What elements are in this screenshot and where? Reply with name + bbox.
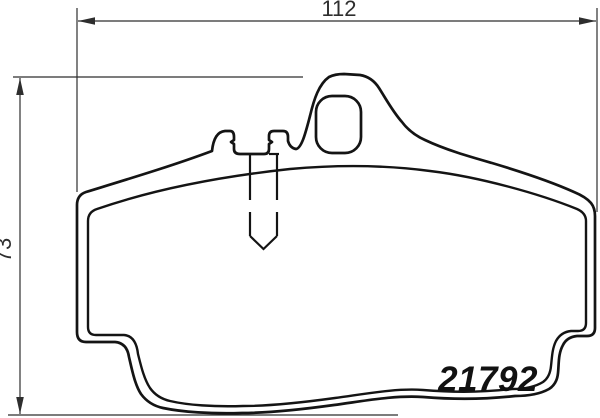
pin-tip-chamfer: [250, 236, 277, 249]
lug-hole: [316, 96, 361, 153]
arrow-right-icon: [579, 17, 596, 25]
arrow-down-icon: [16, 397, 24, 414]
height-dimension-label: 73: [0, 238, 16, 262]
guide-pin: [250, 154, 279, 249]
width-dimension: 112: [77, 0, 597, 212]
width-dimension-label: 112: [321, 0, 356, 21]
brake-pad-drawing: 112 73 21792: [0, 0, 600, 418]
part-number-label: 21792: [437, 360, 538, 399]
arrow-up-icon: [16, 78, 24, 95]
height-dimension: 73: [0, 77, 398, 415]
arrow-left-icon: [78, 17, 95, 25]
technical-drawing-canvas: 112 73 21792: [0, 0, 600, 418]
